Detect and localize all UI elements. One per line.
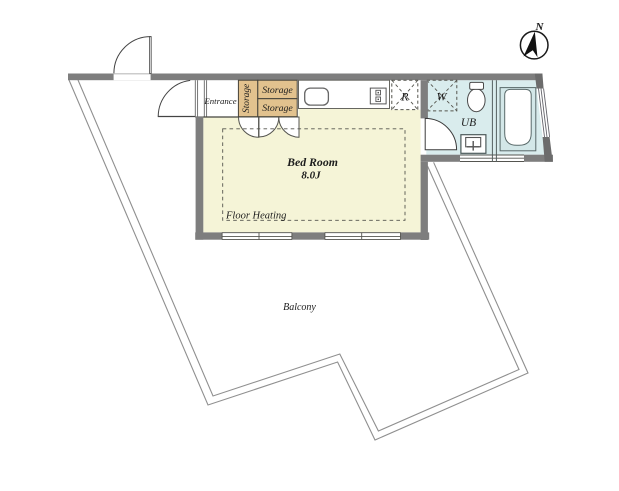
svg-text:Storage: Storage bbox=[262, 103, 293, 114]
svg-text:W: W bbox=[437, 89, 448, 103]
svg-text:Bed Room: Bed Room bbox=[286, 155, 338, 169]
svg-text:UB: UB bbox=[461, 117, 476, 129]
svg-text:8.0J: 8.0J bbox=[301, 170, 321, 182]
svg-text:Floor Heating: Floor Heating bbox=[225, 211, 286, 222]
svg-text:Entrance: Entrance bbox=[203, 96, 236, 106]
svg-text:Balcony: Balcony bbox=[283, 302, 316, 313]
svg-text:Storage: Storage bbox=[242, 84, 252, 113]
svg-text:R: R bbox=[400, 89, 409, 103]
svg-text:N: N bbox=[535, 21, 545, 33]
svg-text:Storage: Storage bbox=[262, 85, 293, 96]
